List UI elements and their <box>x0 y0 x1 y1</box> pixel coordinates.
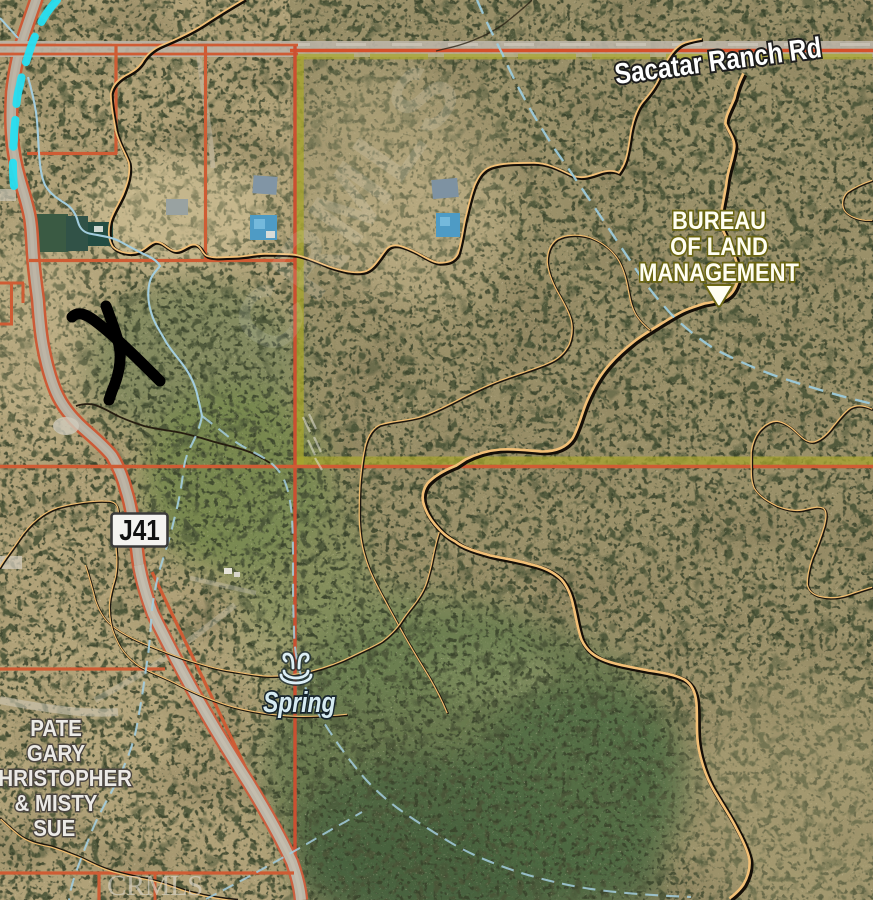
svg-text:SUE: SUE <box>33 815 75 842</box>
svg-text:& MISTY: & MISTY <box>15 790 98 817</box>
svg-text:CRMLS: CRMLS <box>107 870 203 900</box>
svg-text:Spring: Spring <box>263 685 336 718</box>
svg-text:PATE: PATE <box>30 715 81 742</box>
svg-text:GARY: GARY <box>27 740 86 767</box>
svg-text:BUREAU: BUREAU <box>672 207 766 235</box>
svg-text:OF LAND: OF LAND <box>670 233 768 261</box>
svg-text:CHRISTOPHER: CHRISTOPHER <box>0 765 132 792</box>
svg-text:J41: J41 <box>119 514 160 546</box>
svg-text:MANAGEMENT: MANAGEMENT <box>639 259 800 287</box>
